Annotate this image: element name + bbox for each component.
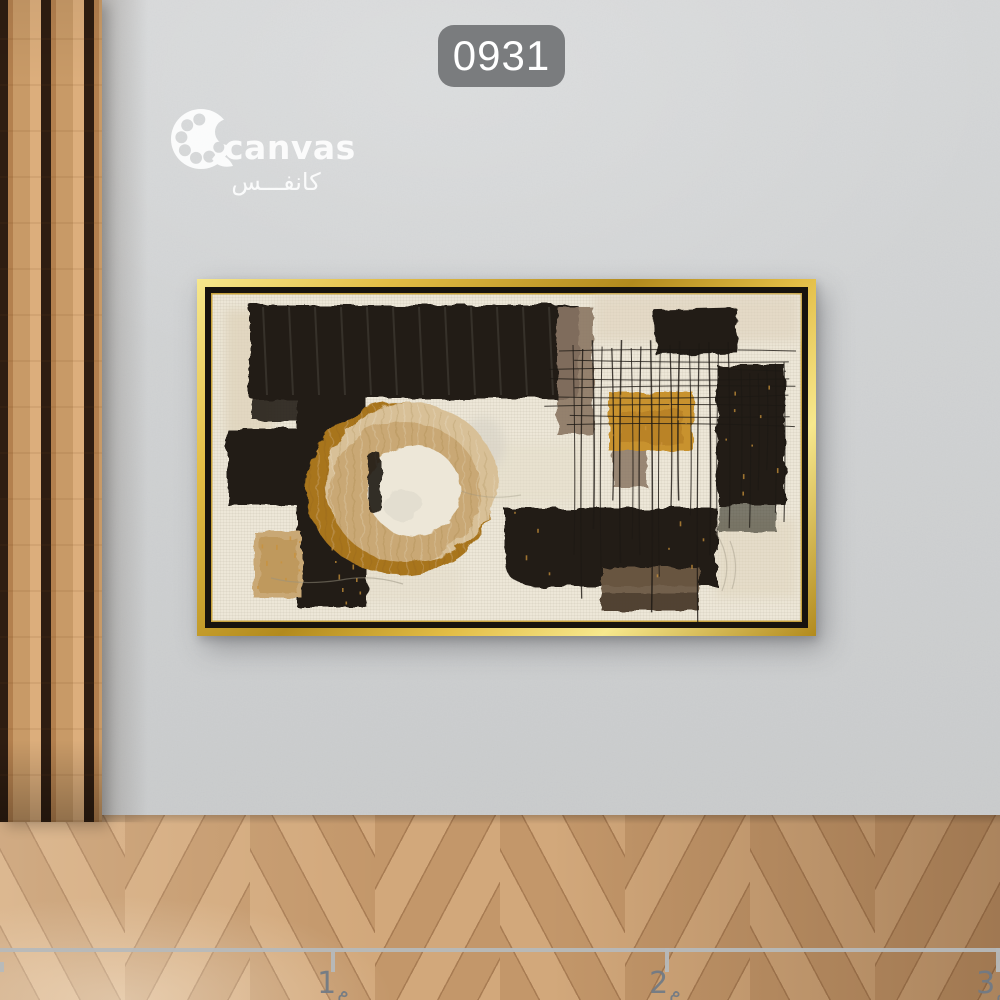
product-code-badge: 0931: [438, 25, 565, 87]
herringbone-floor: [0, 815, 1000, 1000]
wood-slat-panel: [0, 0, 102, 822]
framed-artwork: [197, 279, 816, 636]
brand-name-en: canvas: [224, 128, 356, 167]
product-photo-scene: 0931 canvas كانفـــ: [0, 0, 1000, 1000]
brand-watermark: canvas كانفـــس: [168, 104, 348, 212]
abstract-art: [211, 293, 802, 622]
slat-shadow: [102, 0, 148, 822]
product-code: 0931: [453, 32, 550, 80]
brand-name-ar: كانفـــس: [220, 168, 332, 196]
gold-frame: [197, 279, 816, 636]
artwork-canvas: [211, 293, 802, 622]
frame-inner-black: [205, 287, 808, 628]
